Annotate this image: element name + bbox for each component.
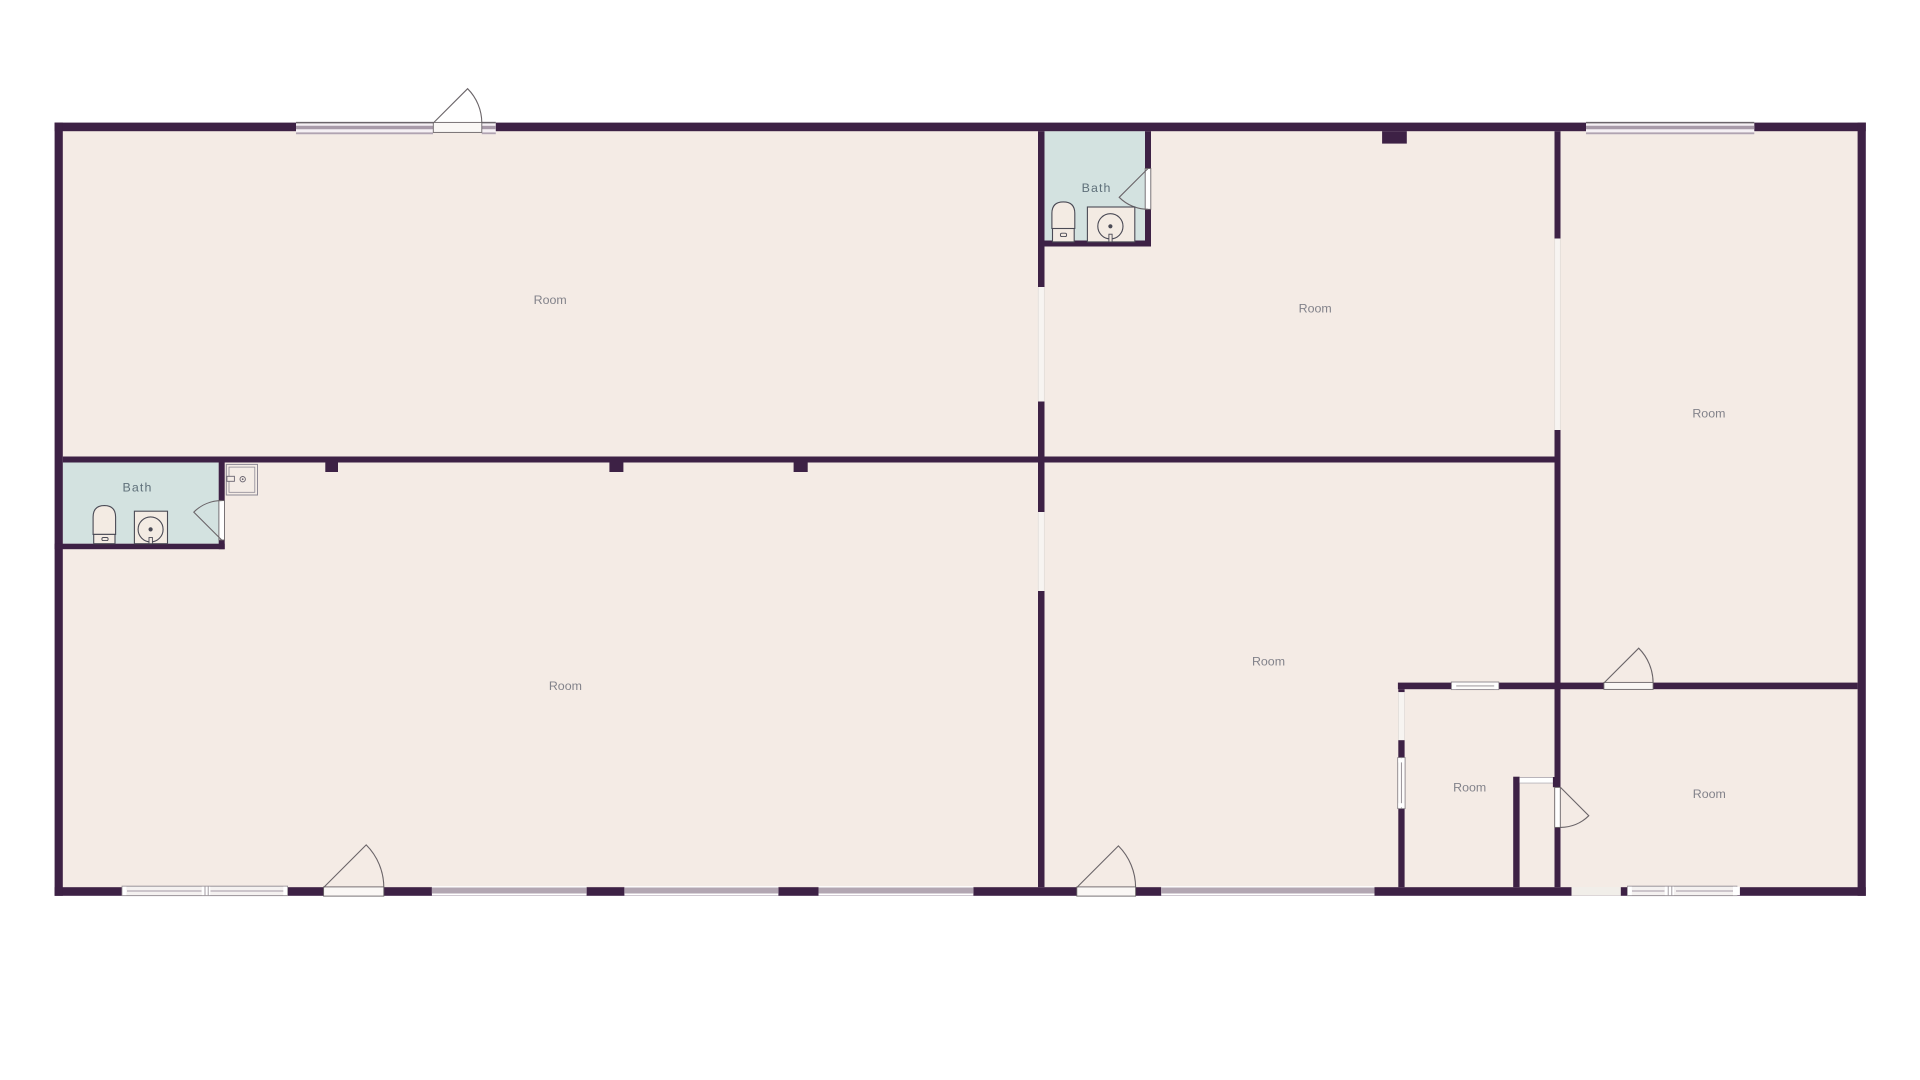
svg-text:Room: Room xyxy=(1299,301,1332,315)
svg-text:Bath: Bath xyxy=(1082,181,1112,195)
svg-text:Room: Room xyxy=(534,293,567,307)
svg-text:Room: Room xyxy=(1692,407,1725,421)
svg-text:Room: Room xyxy=(1252,654,1285,668)
svg-text:Room: Room xyxy=(1693,787,1726,801)
svg-text:Room: Room xyxy=(1453,780,1486,794)
svg-text:Bath: Bath xyxy=(123,481,153,495)
svg-text:Room: Room xyxy=(549,679,582,693)
